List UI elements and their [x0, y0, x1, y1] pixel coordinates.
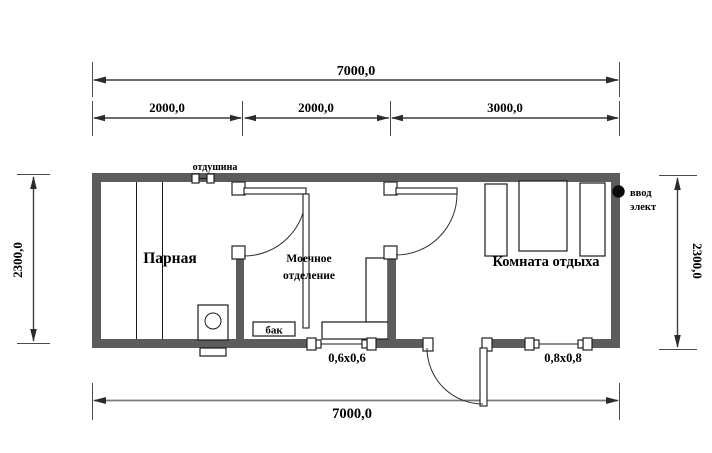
dimension-right: 2300,0 — [659, 176, 705, 350]
window-large-label: 0,8х0,8 — [544, 351, 582, 365]
dimension-label-seg1: 2000,0 — [149, 100, 185, 115]
window-cap — [578, 340, 583, 348]
tank-label: бак — [265, 325, 283, 337]
dimension-label-bottom: 7000,0 — [332, 406, 372, 422]
dimension-label-top: 7000,0 — [337, 64, 376, 79]
floor-plan-drawing: 7000,0 2000,0 2000,0 3000,0 2300,0 230 — [0, 0, 712, 453]
wall-right — [611, 173, 620, 348]
arrow-icon — [391, 115, 403, 121]
dimension-bottom-overall: 7000,0 — [93, 383, 620, 422]
couch-right — [580, 183, 605, 256]
window-large-symbol — [525, 338, 592, 350]
window-jamb — [367, 338, 376, 350]
window-small-symbol — [307, 338, 376, 350]
stove — [198, 305, 228, 340]
vent-icon — [192, 174, 199, 183]
bench-vertical — [366, 258, 388, 322]
electric-entry-icon — [612, 185, 624, 197]
door-jamb — [384, 246, 397, 259]
window-jamb — [307, 338, 316, 350]
electric-label-2: элект — [630, 202, 657, 213]
window-cap — [362, 340, 367, 348]
window-cap — [316, 340, 321, 348]
window-cap — [534, 340, 539, 348]
door-jamb — [232, 246, 245, 259]
arrow-right-icon — [606, 397, 619, 404]
couch-left — [485, 184, 507, 256]
door-leaf-washing — [396, 188, 457, 194]
dimension-label-seg3: 3000,0 — [487, 100, 523, 115]
rest-room — [485, 181, 625, 256]
wall-washing-rest — [384, 182, 457, 339]
wall-bottom-seg2 — [373, 339, 427, 348]
arrow-icon — [377, 115, 389, 121]
room-label-washing-2: отделение — [283, 270, 335, 282]
dimension-label-left: 2300,0 — [10, 242, 25, 278]
electric-label-1: ввод — [630, 188, 652, 199]
door-jamb — [384, 182, 397, 195]
washing-room — [253, 194, 388, 339]
dimension-top-overall: 7000,0 — [93, 62, 620, 97]
arrow-icon — [93, 115, 105, 121]
door-leaf-entrance — [480, 348, 487, 406]
door-jamb — [232, 182, 245, 195]
door-leaf-steam — [244, 188, 306, 194]
stove-firebox — [200, 348, 226, 356]
dimension-label-seg2: 2000,0 — [298, 100, 334, 115]
arrow-up-icon — [30, 176, 37, 189]
table — [519, 181, 567, 251]
vent-icon — [207, 174, 214, 183]
arrow-down-icon — [30, 329, 37, 342]
vent-label: отдушина — [193, 162, 238, 173]
door-swing-arc — [244, 194, 306, 256]
arrow-right-icon — [606, 77, 619, 84]
room-label-rest: Комната отдыха — [492, 254, 600, 270]
entrance-door — [423, 338, 492, 406]
window-small-label: 0,6х0,6 — [328, 351, 366, 365]
arrow-up-icon — [674, 177, 681, 190]
wall-bottom-seg3 — [490, 339, 529, 348]
dimension-top-segments: 2000,0 2000,0 3000,0 — [93, 100, 620, 136]
door-swing-arc — [396, 194, 457, 255]
arrow-icon — [244, 115, 256, 121]
arrow-left-icon — [93, 397, 106, 404]
room-label-washing-1: Моечное — [286, 253, 331, 265]
bench-horizontal — [322, 322, 388, 339]
door-jamb — [423, 338, 433, 351]
wall-segment — [236, 257, 244, 339]
floor-plan-canvas: 7000,0 2000,0 2000,0 3000,0 2300,0 230 — [0, 0, 712, 453]
window-jamb — [525, 338, 534, 350]
dimension-left: 2300,0 — [10, 175, 50, 344]
door-swing-arc — [427, 348, 483, 404]
room-label-steam: Парная — [143, 250, 197, 267]
dimension-label-right: 2300,0 — [690, 243, 705, 279]
wall-left — [92, 173, 101, 348]
arrow-down-icon — [674, 335, 681, 348]
steam-room — [137, 182, 229, 356]
arrow-icon — [230, 115, 242, 121]
window-jamb — [583, 338, 592, 350]
wall-segment — [388, 257, 396, 339]
wall-bottom-seg4 — [588, 339, 620, 348]
arrow-left-icon — [93, 77, 106, 84]
arrow-icon — [607, 115, 619, 121]
